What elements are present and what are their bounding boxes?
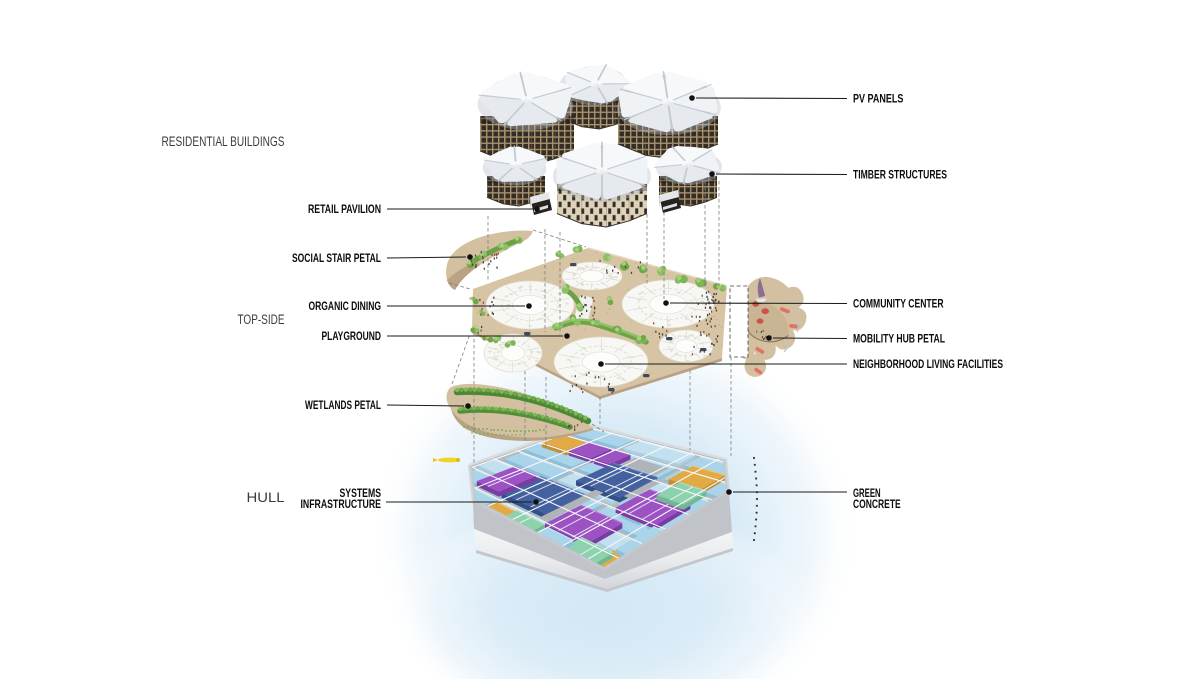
svg-text:NEIGHBORHOOD LIVING FACILITIES: NEIGHBORHOOD LIVING FACILITIES	[853, 359, 1003, 371]
svg-text:RETAIL PAVILION: RETAIL PAVILION	[308, 204, 381, 216]
svg-text:HULL: HULL	[247, 490, 286, 505]
svg-text:RESIDENTIAL BUILDINGS: RESIDENTIAL BUILDINGS	[162, 134, 285, 149]
svg-text:PLAYGROUND: PLAYGROUND	[322, 331, 382, 343]
svg-text:COMMUNITY CENTER: COMMUNITY CENTER	[853, 299, 944, 311]
svg-text:SOCIAL STAIR PETAL: SOCIAL STAIR PETAL	[292, 253, 381, 265]
svg-text:WETLANDS PETAL: WETLANDS PETAL	[305, 400, 381, 412]
svg-text:TIMBER STRUCTURES: TIMBER STRUCTURES	[853, 170, 947, 182]
svg-text:INFRASTRUCTURE: INFRASTRUCTURE	[301, 499, 382, 511]
svg-text:TOP-SIDE: TOP-SIDE	[238, 312, 285, 327]
svg-text:PV PANELS: PV PANELS	[853, 94, 904, 106]
svg-text:MOBILITY HUB PETAL: MOBILITY HUB PETAL	[853, 334, 945, 346]
svg-text:CONCRETE: CONCRETE	[853, 499, 901, 511]
svg-text:ORGANIC DINING: ORGANIC DINING	[309, 301, 382, 313]
